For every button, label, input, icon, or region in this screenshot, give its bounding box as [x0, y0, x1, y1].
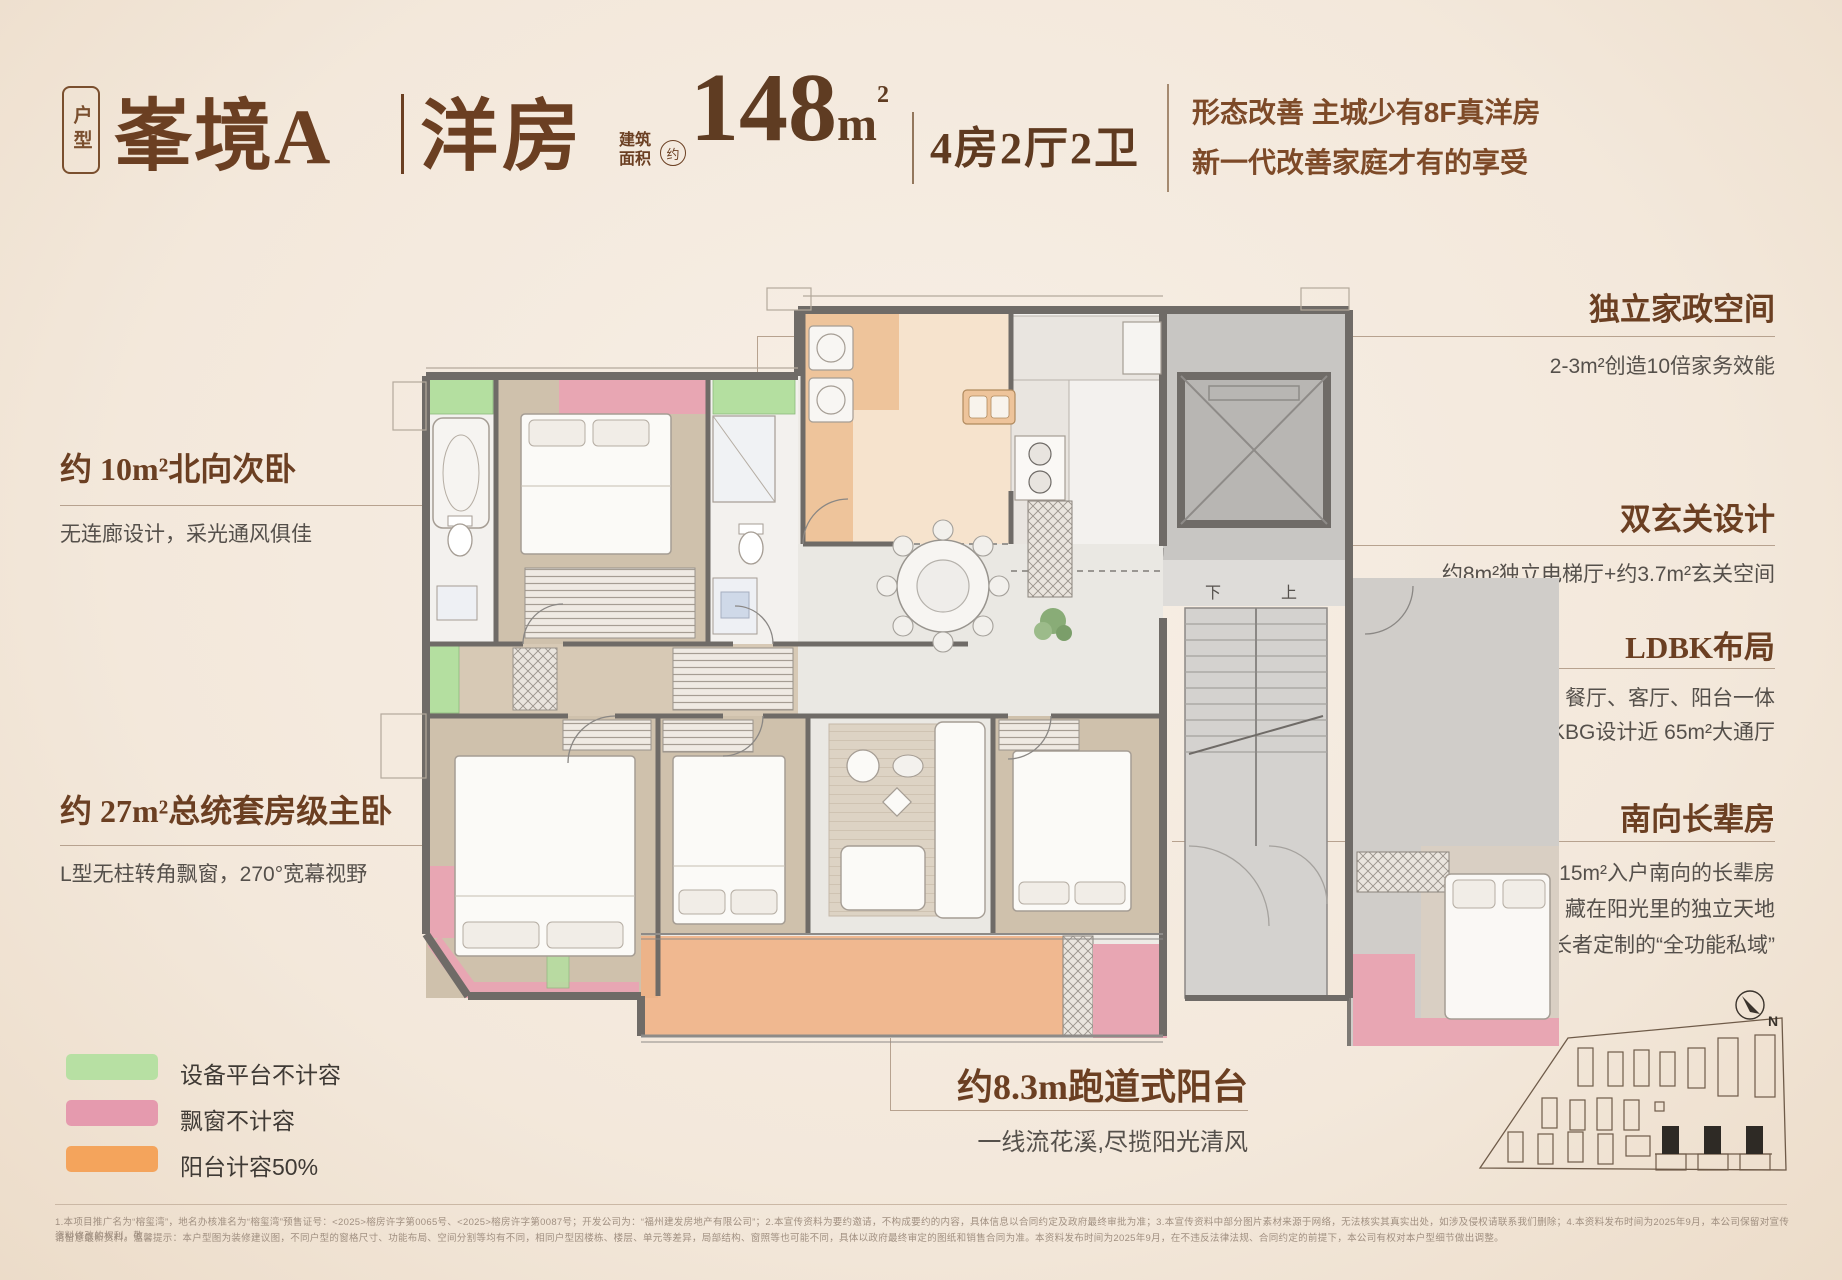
slogan: 形态改善 主城少有8F真洋房 新一代改善家庭才有的享受 [1192, 88, 1540, 188]
legend-swatch-balcony [66, 1146, 158, 1172]
page-title-main: 峯境A [114, 74, 332, 186]
area-about-circle: 约 [660, 140, 686, 166]
area-value: 148 [690, 54, 837, 162]
site-boundary [1480, 1018, 1786, 1170]
annotation-housework-desc: 2-3m²创造10倍家务效能 [1550, 350, 1775, 380]
header-divider-3 [1167, 84, 1169, 192]
area-unit: m [837, 98, 877, 151]
annotation-master-title: 约 27m²总统套房级主卧 [60, 786, 392, 832]
page-title-sub: 洋房 [420, 74, 584, 186]
disclaimer-line2: 请留意最新资料。温馨提示：本户型图为装修建议图，不同户型的窗格尺寸、功能布局、空… [55, 1230, 1795, 1244]
stair-up-label: 上 [1281, 584, 1297, 602]
slogan-line1: 形态改善 主城少有8F真洋房 [1192, 88, 1540, 138]
stair-down-label: 下 [1205, 585, 1221, 602]
unit-type-badge: 户型 [62, 86, 100, 174]
area-prefix-line2: 面积 [619, 150, 651, 169]
annotation-foyer-title: 双玄关设计 [1620, 494, 1775, 539]
annotation-ldbk-title: LDBK布局 [1625, 622, 1775, 667]
annotation-north-bedroom-title: 约 10m²北向次卧 [60, 444, 296, 490]
site-buildings [1508, 1035, 1775, 1170]
annotation-north-bedroom-desc: 无连廊设计，采光通风俱佳 [60, 518, 312, 548]
area-sup: 2 [877, 82, 889, 108]
legend-label-balcony: 阳台计容50% [180, 1148, 318, 1182]
annotation-balcony-desc: 一线流花溪,尽揽阳光清风 [977, 1122, 1248, 1157]
title-divider [401, 94, 404, 174]
header-divider-2 [912, 112, 914, 184]
legend-swatch-equipment [66, 1054, 158, 1080]
legend-swatch-baywindow [66, 1100, 158, 1126]
legend-label-baywindow: 飘窗不计容 [180, 1102, 295, 1136]
compass-north-label: N [1768, 1013, 1778, 1029]
poster-page: 户型 峯境A 洋房 建筑 面积 约 148m2 4房2厅2卫 形态改善 主城少有… [0, 0, 1842, 1280]
area-figure: 148m2 [690, 52, 889, 164]
annotation-balcony-rule [890, 1110, 1248, 1111]
floorplan-drawing: 下 上 [363, 286, 1568, 1066]
disclaimer-rule [55, 1204, 1787, 1205]
compass-icon: N [1736, 991, 1778, 1029]
site-map: N [1450, 960, 1810, 1195]
annotation-elder-title: 南向长辈房 [1620, 794, 1775, 839]
annotation-housework-title: 独立家政空间 [1589, 284, 1775, 329]
site-highlighted-buildings [1662, 1126, 1763, 1154]
legend-label-equipment: 设备平台不计容 [180, 1056, 341, 1090]
annotation-master-desc: L型无柱转角飘窗，270°宽幕视野 [60, 858, 367, 888]
area-prefix-line1: 建筑 [619, 131, 651, 150]
room-count: 4房2厅2卫 [930, 112, 1140, 176]
slogan-line2: 新一代改善家庭才有的享受 [1192, 138, 1540, 188]
area-prefix: 建筑 面积 [619, 131, 651, 169]
